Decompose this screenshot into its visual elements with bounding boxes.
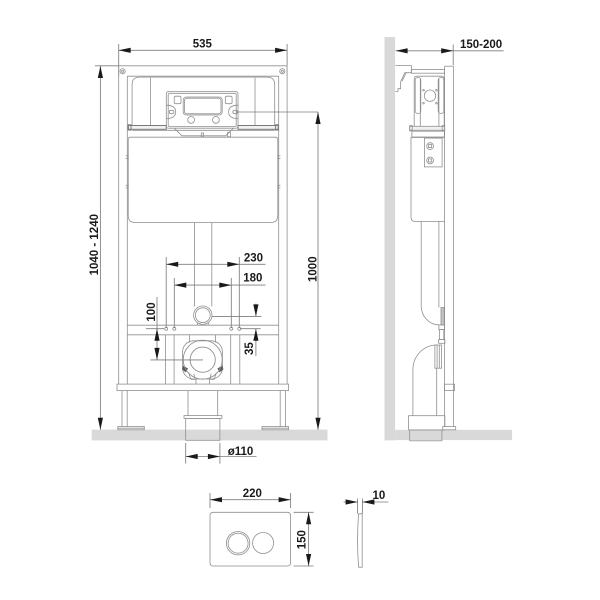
svg-text:100: 100 <box>146 302 158 321</box>
svg-text:535: 535 <box>193 38 213 50</box>
svg-text:1000: 1000 <box>307 256 319 282</box>
svg-text:220: 220 <box>243 488 262 500</box>
svg-text:35: 35 <box>244 342 256 355</box>
svg-text:ø110: ø110 <box>228 446 254 458</box>
svg-text:230: 230 <box>244 252 263 264</box>
svg-text:150-200: 150-200 <box>460 39 502 51</box>
svg-text:10: 10 <box>373 490 386 502</box>
svg-text:1040 - 1240: 1040 - 1240 <box>89 214 101 275</box>
svg-text:150: 150 <box>296 530 308 549</box>
svg-text:180: 180 <box>243 273 262 285</box>
